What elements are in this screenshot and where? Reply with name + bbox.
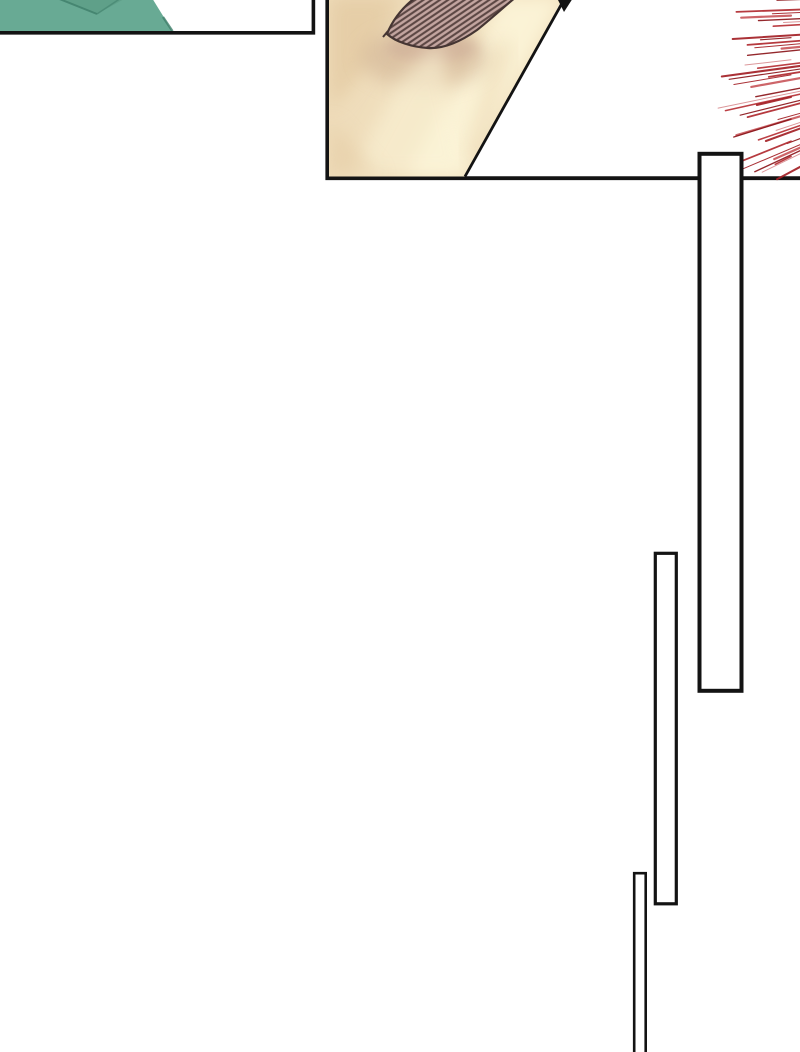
inset-panel-tall-box	[700, 154, 742, 691]
inset-panel-tall	[700, 154, 742, 691]
inset-panel-mid	[655, 553, 676, 904]
inset-panel-bottom	[634, 873, 646, 1052]
comic-page	[0, 0, 800, 1052]
panel-top-left	[0, 0, 313, 33]
inset-panel-bottom-box	[634, 873, 646, 1052]
inset-panel-mid-box	[655, 553, 676, 904]
comic-artwork	[0, 0, 800, 1052]
